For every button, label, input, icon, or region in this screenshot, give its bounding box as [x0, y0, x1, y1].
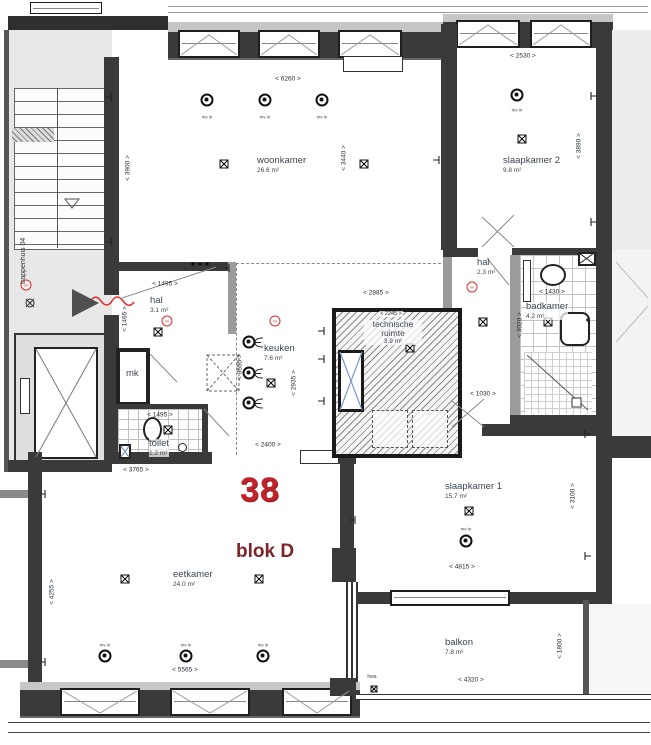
dining-left-wall	[28, 452, 42, 706]
room-label-hal: hal 3.1 m²	[150, 296, 168, 314]
dining-window-2	[170, 688, 250, 716]
room-label-keuken: keuken 7.6 m²	[264, 344, 295, 362]
room-area: 1.2 m²	[149, 450, 169, 457]
room-name: technische ruimte	[364, 320, 422, 338]
communal-bottom-wall	[8, 460, 112, 472]
vent-label: mv in	[461, 527, 472, 532]
room-area: 2.3 m²	[477, 269, 495, 276]
room-name: mk	[126, 369, 139, 380]
vent-label: mv in	[317, 115, 328, 120]
dim-hal2-width: < 1030 >	[470, 391, 496, 398]
rainwater-label: hwa	[367, 674, 376, 680]
room-name: slaapkamer 1	[445, 482, 502, 493]
bedroom2-window-1	[456, 20, 520, 48]
room-label-balkon: balkon 7.8 m²	[445, 638, 473, 656]
dim-slaapkamer2-depth: < 3890 >	[576, 133, 583, 159]
vent-label: mv in	[202, 115, 213, 120]
balcony-slab-line-2	[8, 732, 650, 733]
bedroom2-door-gap	[478, 248, 512, 257]
room-name: hal	[477, 258, 495, 269]
dim-keuken-depth-2: < 2935 >	[291, 370, 298, 396]
vent-icon	[243, 367, 256, 380]
livingroom-window-2	[258, 30, 320, 58]
dim-badkamer-depth: < 3020 >	[517, 312, 524, 338]
dining-bedroom1-wall	[340, 452, 354, 552]
unit-number: 38	[240, 471, 280, 510]
room-name: woonkamer	[257, 156, 306, 167]
hall-top-wall	[112, 262, 234, 271]
balcony-slab-line-1	[8, 722, 650, 723]
left-stub-wall-2	[0, 660, 28, 668]
balcony-railing	[356, 694, 651, 700]
rainwater-drain-icon	[371, 686, 378, 693]
room-label-woonkamer: woonkamer 26.6 m²	[257, 156, 306, 174]
neighbor-balcony	[589, 604, 651, 694]
balcony-wall-extension	[589, 592, 612, 604]
divider-livingroom-bedroom2	[441, 24, 457, 250]
room-name: slaapkamer 2	[503, 156, 560, 167]
light-point-icon	[164, 426, 173, 435]
dim-keuken-depth: < 3555 >	[237, 354, 244, 380]
dim-eetkamer-top: < 3765 >	[123, 467, 149, 474]
vent-icon	[460, 535, 473, 548]
room-area: 7.8 m²	[445, 649, 473, 656]
technical-shaft	[338, 350, 364, 412]
smoke-detector-icon: rm	[270, 316, 281, 327]
room-label-mk: mk	[126, 369, 139, 380]
light-point-icon	[154, 328, 163, 337]
neighbor-dark-block	[612, 436, 651, 458]
room-label-hal2: hal 2.3 m²	[477, 258, 495, 276]
dim-keuken-width: < 2400 >	[255, 442, 281, 449]
vent-label: mv in	[100, 643, 111, 648]
room-name: toilet	[149, 439, 169, 450]
dining-window-1	[60, 688, 140, 716]
bathroom-radiator	[523, 260, 531, 302]
separation-wall-upper	[104, 57, 119, 295]
dim-technische-inner: < 2245 >	[379, 311, 403, 317]
block-label: blok D	[236, 541, 294, 563]
room-area: 26.6 m²	[257, 167, 306, 174]
vent-icon	[316, 94, 329, 107]
dim-woonkamer-depth-2: < 3440 >	[341, 145, 348, 171]
room-area: 4.2 m²	[526, 313, 568, 320]
smoke-detector-icon: rm	[467, 282, 478, 293]
dim-slaapkamer2-width: < 2530 >	[510, 53, 536, 60]
toilet-bowl-bathroom	[540, 264, 566, 286]
room-area: 9.8 m²	[503, 167, 560, 174]
room-area: 15.7 m²	[445, 493, 502, 500]
light-point-icon	[465, 507, 474, 516]
bedroom1-right-wall	[596, 484, 612, 604]
communal-left-wall	[4, 30, 9, 472]
dim-technische-width: < 2885 >	[363, 290, 389, 297]
stairwell-label: trappenhuis 04	[20, 212, 27, 284]
room-name: keuken	[264, 344, 295, 355]
dim-hal-width: < 1495 >	[152, 281, 178, 288]
room-area: 7.6 m²	[264, 355, 295, 362]
canopy-line-2	[168, 12, 648, 13]
dim-eetkamer-depth: < 4255 >	[49, 579, 56, 605]
light-point-icon	[255, 575, 264, 584]
stair-stringer	[57, 88, 58, 248]
toilet-basin	[178, 443, 187, 452]
dim-toilet-width: < 1495 >	[147, 412, 173, 419]
vent-label: mv in	[260, 115, 271, 120]
room-label-toilet: toilet 1.2 m²	[149, 439, 169, 457]
bedroom2-window-2	[530, 20, 592, 48]
shower-floor	[524, 352, 592, 414]
room-area: 3.9 m²	[364, 338, 422, 345]
vent-icon	[201, 94, 214, 107]
dim-badkamer-width: < 1430 >	[539, 289, 565, 296]
light-point-icon	[220, 160, 229, 169]
canopy-line-1	[168, 6, 648, 7]
vent-label: mv in	[258, 643, 269, 648]
staircase	[14, 88, 108, 250]
dim-slaapkamer1-depth: < 3100 >	[570, 483, 577, 509]
smoke-detector-icon: rm	[162, 316, 173, 327]
balcony-corner-block	[332, 548, 356, 582]
room-name: eetkamer	[173, 570, 213, 581]
room-name: balkon	[445, 638, 473, 649]
neighbor-area-mid	[612, 250, 651, 436]
vent-icon	[99, 650, 112, 663]
room-label-eetkamer: eetkamer 24.0 m²	[173, 570, 213, 588]
dryer-position	[412, 410, 448, 448]
left-stub-wall-1	[0, 490, 28, 498]
livingroom-window-1	[178, 30, 240, 58]
top-left-wall	[8, 16, 168, 30]
floor-plan: mv in mv in mv in mv in mv in mv in mv i…	[0, 0, 651, 745]
kitchen-unit-dashed	[207, 355, 239, 391]
hall-right-wall	[228, 262, 236, 334]
dim-balkon-depth: < 1800 >	[557, 633, 564, 659]
corner-pillar	[330, 678, 356, 696]
dim-eetkamer-width: < 5565 >	[172, 667, 198, 674]
toilet-shaft	[119, 444, 131, 459]
washer-position	[372, 410, 408, 448]
bathroom-duct	[578, 252, 596, 266]
kitchen-extract-symbols	[255, 338, 263, 408]
window-sill-box	[343, 56, 403, 72]
dining-sill-line	[20, 716, 360, 718]
dim-woonkamer-width: < 6260 >	[275, 76, 301, 83]
room-area: 3.1 m²	[150, 307, 168, 314]
dim-hal-depth: < 1465 >	[122, 306, 129, 332]
neighbor-area-top	[612, 30, 651, 250]
vent-label: mv in	[512, 108, 523, 113]
light-point-icon	[121, 575, 130, 584]
vent-label: mv in	[181, 643, 192, 648]
elevator-car	[34, 347, 98, 459]
vent-icon	[259, 94, 272, 107]
light-point-icon	[518, 135, 527, 144]
light-point-icon	[479, 318, 488, 327]
vent-icon	[243, 397, 256, 410]
light-point-icon	[360, 160, 369, 169]
kitchen-boundary-horizontal	[236, 263, 441, 264]
hall2-bathroom-wall	[510, 255, 520, 425]
dim-slaapkamer1-width: < 4815 >	[449, 564, 475, 571]
bathroom-bottom-wall	[510, 415, 612, 429]
vent-icon	[243, 336, 256, 349]
vent-icon	[180, 650, 193, 663]
dim-woonkamer-depth: < 3900 >	[125, 155, 132, 181]
vent-icon	[511, 89, 524, 102]
stair-landing-hatch	[12, 128, 54, 142]
room-label-slaapkamer1: slaapkamer 1 15.7 m²	[445, 482, 502, 500]
room-label-slaapkamer2: slaapkamer 2 9.8 m²	[503, 156, 560, 174]
dim-balkon-width: < 4320 >	[458, 677, 484, 684]
room-name: hal	[150, 296, 168, 307]
room-name: badkamer	[526, 302, 568, 313]
light-point-icon	[267, 379, 276, 388]
room-label-badkamer: badkamer 4.2 m²	[526, 302, 568, 320]
livingroom-window-3	[338, 30, 402, 58]
elevator-counterweight	[20, 378, 30, 414]
entry-window	[30, 2, 102, 14]
vent-icon	[257, 650, 270, 663]
room-area: 24.0 m²	[173, 581, 213, 588]
room-label-technische-ruimte: technische ruimte 3.9 m²	[364, 320, 422, 345]
bedroom1-balcony-window	[390, 590, 510, 606]
